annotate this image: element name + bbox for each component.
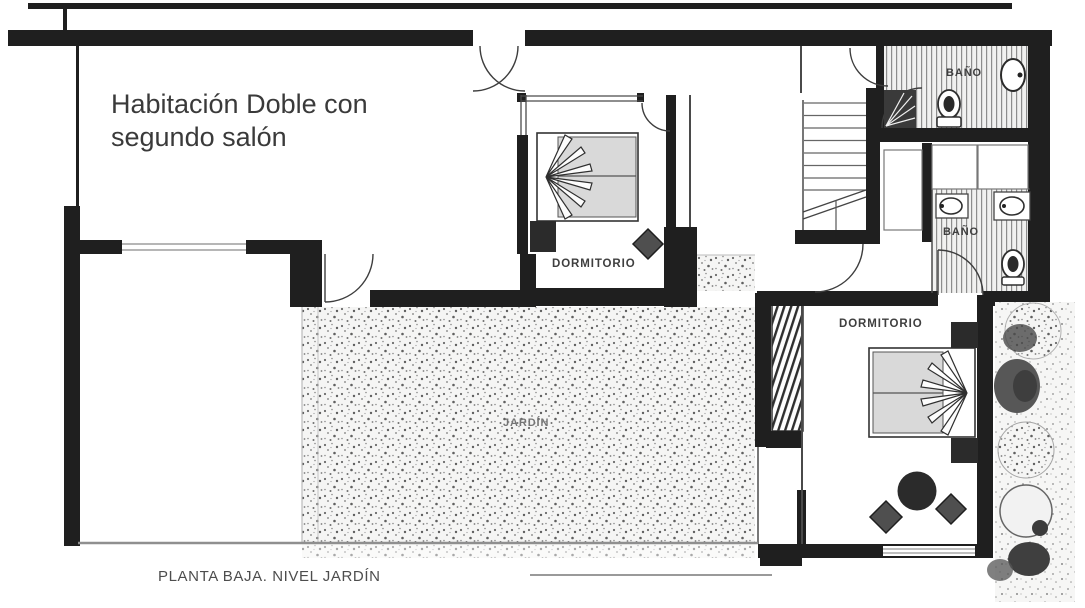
staircase [803, 103, 866, 230]
chair-diamond [870, 501, 902, 533]
bedroom2-furniture [869, 322, 978, 533]
room-label-bathroom-upper: BAÑO [946, 67, 982, 79]
room-label-bedroom-upper: DORMITORIO [552, 258, 636, 270]
plan-annotation: Habitación Doble con segundo salón [111, 88, 411, 155]
stool-diamond [633, 229, 663, 259]
bedroom1-door-arc [642, 103, 670, 131]
vegetation [987, 302, 1075, 602]
stair-break-line [803, 197, 866, 219]
bedroom1-furniture [530, 133, 663, 259]
room-label-garden: JARDÍN [503, 417, 549, 429]
plan-caption: PLANTA BAJA. NIVEL JARDÍN [158, 568, 381, 585]
shrub [1008, 542, 1050, 576]
nightstand [951, 438, 978, 463]
shrub [998, 422, 1054, 478]
stair-break-line [803, 190, 866, 212]
mattress [558, 137, 636, 217]
louver-steps [772, 300, 803, 431]
round-table [898, 472, 937, 511]
room-label-bathroom-lower: BAÑO [943, 226, 979, 238]
hall-door-arc [815, 244, 863, 292]
nightstand [530, 221, 556, 252]
garden-door-arc [325, 254, 373, 302]
chair-diamond [936, 494, 966, 524]
floor-plan: Habitación Doble con segundo salón DORMI… [0, 0, 1085, 608]
nightstand [951, 322, 978, 348]
room-label-bedroom-right: DORMITORIO [839, 318, 923, 330]
